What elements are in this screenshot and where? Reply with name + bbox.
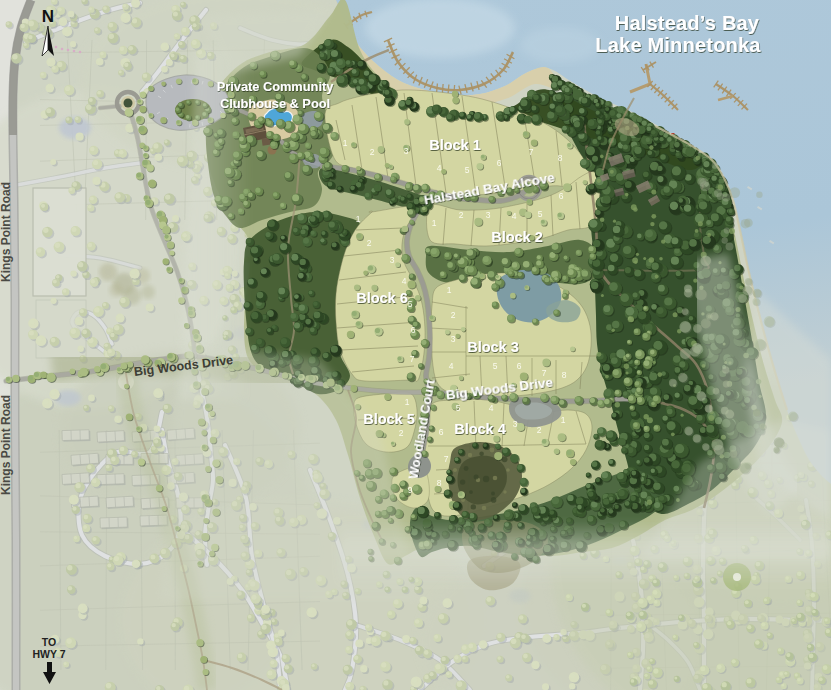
svg-text:4: 4: [449, 361, 454, 371]
svg-text:Block 5: Block 5: [363, 411, 415, 427]
svg-text:8: 8: [437, 478, 442, 488]
svg-text:2: 2: [459, 210, 464, 220]
svg-text:7: 7: [542, 368, 547, 378]
svg-text:4: 4: [512, 211, 517, 221]
svg-text:4: 4: [437, 163, 442, 173]
svg-text:HWY 7: HWY 7: [32, 648, 65, 660]
svg-text:3: 3: [451, 334, 456, 344]
svg-text:6: 6: [517, 361, 522, 371]
svg-text:8: 8: [558, 153, 563, 163]
svg-text:7: 7: [410, 354, 415, 364]
svg-text:N: N: [42, 7, 54, 26]
svg-text:5: 5: [408, 299, 413, 309]
svg-text:Kings Point Road: Kings Point Road: [0, 182, 13, 282]
svg-text:Block 1: Block 1: [429, 137, 481, 153]
svg-text:Block 2: Block 2: [491, 229, 543, 245]
svg-text:Halstead’s Bay: Halstead’s Bay: [615, 12, 760, 34]
svg-text:6: 6: [559, 191, 564, 201]
svg-text:Lake Minnetonka: Lake Minnetonka: [595, 34, 761, 56]
svg-text:TO: TO: [42, 636, 56, 648]
svg-text:Clubhouse & Pool: Clubhouse & Pool: [220, 96, 330, 111]
svg-text:5: 5: [493, 361, 498, 371]
svg-text:3: 3: [390, 255, 395, 265]
svg-text:7: 7: [444, 454, 449, 464]
svg-text:6: 6: [497, 158, 502, 168]
svg-text:9: 9: [408, 485, 413, 495]
svg-text:3: 3: [486, 210, 491, 220]
svg-text:2: 2: [370, 147, 375, 157]
svg-text:Private Community: Private Community: [217, 79, 335, 94]
svg-text:8: 8: [562, 370, 567, 380]
svg-text:6: 6: [411, 325, 416, 335]
svg-text:2: 2: [367, 238, 372, 248]
svg-text:Block 3: Block 3: [467, 339, 519, 355]
svg-text:5: 5: [456, 403, 461, 413]
svg-text:5: 5: [538, 209, 543, 219]
svg-text:Block 4: Block 4: [454, 421, 506, 437]
svg-text:1: 1: [356, 214, 361, 224]
svg-text:4: 4: [489, 403, 494, 413]
svg-text:1: 1: [447, 285, 452, 295]
svg-text:6: 6: [439, 427, 444, 437]
svg-text:Kings Point Road: Kings Point Road: [0, 395, 13, 495]
svg-text:7: 7: [529, 147, 534, 157]
svg-text:1: 1: [432, 218, 437, 228]
svg-text:Block 6: Block 6: [356, 290, 408, 306]
svg-text:1: 1: [405, 397, 410, 407]
svg-text:2: 2: [451, 310, 456, 320]
svg-text:3: 3: [513, 419, 518, 429]
svg-text:5: 5: [465, 165, 470, 175]
svg-text:2: 2: [537, 425, 542, 435]
svg-text:3: 3: [404, 146, 409, 156]
svg-text:1: 1: [561, 415, 566, 425]
svg-text:1: 1: [343, 138, 348, 148]
svg-text:2: 2: [399, 428, 404, 438]
svg-text:4: 4: [402, 276, 407, 286]
